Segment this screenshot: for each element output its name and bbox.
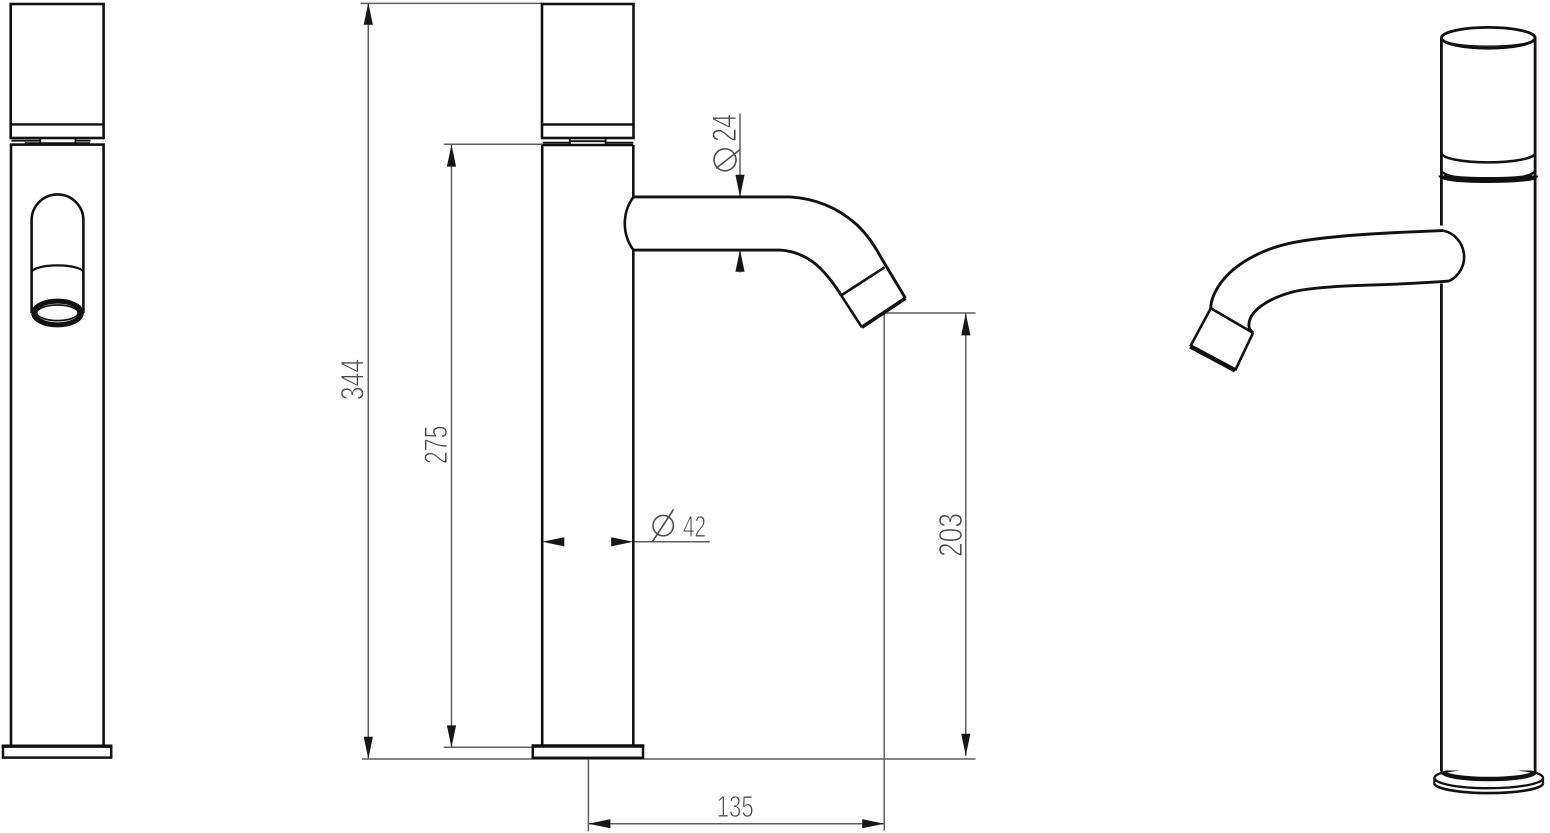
svg-text:24: 24	[706, 114, 744, 142]
svg-text:275: 275	[418, 425, 454, 464]
svg-text:42: 42	[683, 509, 706, 544]
svg-text:344: 344	[334, 359, 370, 400]
svg-text:135: 135	[717, 790, 754, 824]
svg-text:203: 203	[932, 513, 969, 557]
